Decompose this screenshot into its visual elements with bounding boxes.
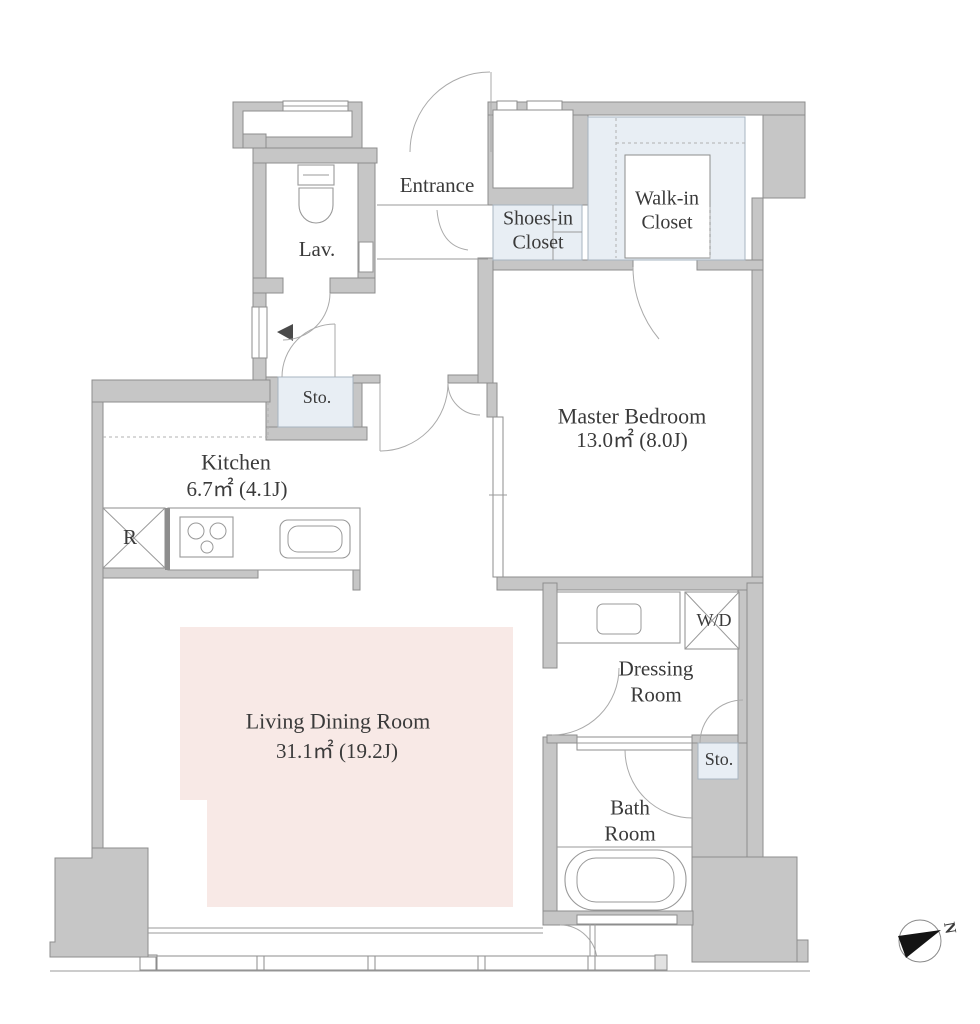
wall-dressing-left: [543, 583, 557, 668]
storage-dressing-label: Sto.: [705, 749, 734, 771]
bath-room-label: Bath Room: [598, 795, 662, 846]
floor-plan: Entrance Lav. Sto. Shoes-in Closet Walk-…: [0, 0, 980, 1024]
bath-window: [577, 915, 677, 924]
master-bedroom-area: 13.0㎡ (8.0J): [576, 428, 687, 454]
shoes-in-closet-label: Shoes-in Closet: [488, 207, 588, 256]
compass-north-label: N: [939, 921, 959, 936]
wall-lav-left-lower: [253, 358, 266, 380]
window-mullion-2: [368, 956, 375, 970]
wall-mb-top-left: [488, 260, 633, 270]
master-bedroom-door-arc: [633, 267, 659, 339]
window-endcap-right: [655, 955, 667, 970]
pillar-foot: [140, 957, 156, 970]
lavatory-label: Lav.: [299, 237, 336, 263]
hall-ld-door-arc: [380, 383, 448, 451]
hall-small-door-arc: [448, 383, 480, 415]
kitchen-label: Kitchen: [201, 450, 271, 477]
toilet-bowl: [299, 188, 333, 223]
wall-hall-ld-right: [448, 375, 480, 383]
entrance-triangle-marker: [277, 324, 293, 341]
wall-kitchen-top: [92, 380, 270, 402]
wall-bottom-right-mass: [692, 857, 797, 962]
dressing-room-label: Dressing Room: [601, 656, 711, 707]
meter-box: [493, 110, 573, 188]
living-dining-floor: [180, 627, 513, 907]
counter-divider: [165, 508, 170, 570]
wall-lav-bottom-right: [330, 278, 375, 293]
wall-sto1-right: [353, 377, 362, 427]
entrance-door-arc: [410, 72, 490, 152]
wall-mb-bottom: [497, 577, 763, 590]
washer-dryer-label: W/D: [697, 610, 732, 632]
bathtub-outer: [565, 850, 686, 910]
pillar-bottom-left: [50, 848, 148, 957]
living-dining-label: Living Dining Room: [246, 709, 431, 736]
wall-top-right-mass: [763, 115, 805, 198]
wall-mb-top-right: [697, 260, 763, 270]
wall-lav-bottom-left: [253, 278, 283, 293]
lav-cabinet: [359, 242, 373, 272]
floor-plan-drawing: [0, 0, 980, 1024]
wall-hall-ld-left: [353, 375, 380, 383]
refrigerator-label: R: [123, 525, 137, 551]
stove-unit: [180, 517, 233, 557]
protrusion-notch: [243, 134, 266, 148]
wall-left-outer: [92, 402, 103, 848]
wall-top-left-band: [253, 148, 377, 163]
wall-mb-left-upper: [478, 258, 493, 383]
wall-mb-left-stub: [487, 383, 497, 417]
wall-bath-left: [543, 737, 557, 925]
wall-mass-foot: [797, 940, 808, 962]
wall-sto1-bottom: [266, 427, 367, 440]
entrance-inner-door-arc: [437, 210, 468, 250]
kitchen-area: 6.7㎡ (4.1J): [187, 477, 288, 503]
wall-right-column-upper: [752, 198, 763, 583]
entrance-label: Entrance: [400, 173, 475, 199]
window-mullion-3: [478, 956, 485, 970]
storage-hall-label: Sto.: [303, 387, 332, 409]
living-dining-area: 31.1㎡ (19.2J): [276, 739, 398, 765]
master-bedroom-label: Master Bedroom: [558, 404, 706, 431]
walk-in-closet-label: Walk-in Closet: [624, 187, 710, 236]
balcony-window-band: [155, 956, 663, 970]
mb-sliding-partition: [493, 417, 503, 577]
window-mullion-4: [588, 956, 595, 970]
compass: [898, 920, 941, 962]
dressing-vanity: [557, 592, 680, 643]
window-mullion-1: [257, 956, 264, 970]
wall-right-column-lower: [747, 583, 763, 857]
wall-dressing-bottom-left: [547, 735, 577, 743]
protrusion-inner: [243, 111, 352, 137]
